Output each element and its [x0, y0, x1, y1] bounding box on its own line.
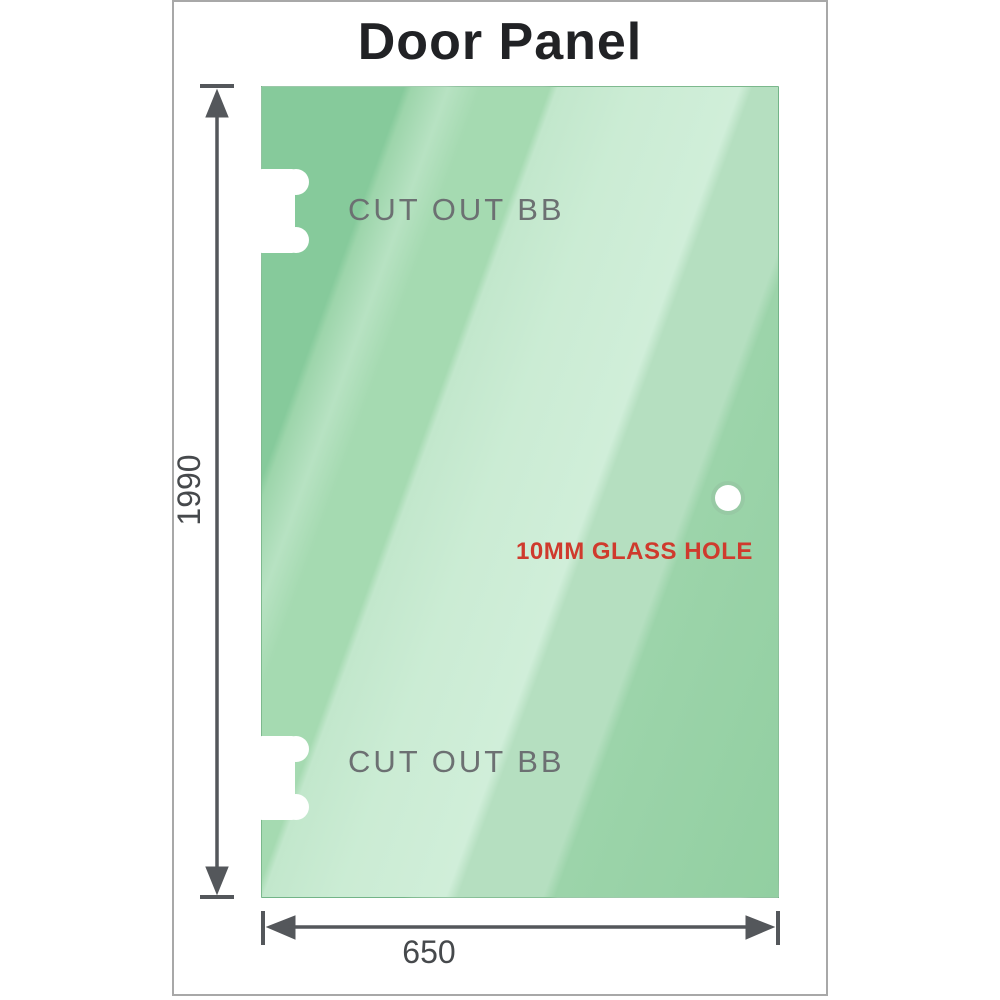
hinge-cutout-top-icon: [259, 168, 311, 255]
height-dimension-value: 1990: [171, 430, 211, 550]
width-dimension-value: 650: [369, 934, 489, 971]
cutout-bottom-label: CUT OUT BB: [348, 744, 565, 780]
door-panel-diagram: Door Panel CUT OUT BB CUT OUT BB 10MM GL…: [0, 0, 1000, 1000]
hinge-cutout-bottom-icon: [259, 735, 311, 822]
glass-hole-label: 10MM GLASS HOLE: [516, 538, 753, 566]
page-title: Door Panel: [172, 12, 828, 72]
glass-hole-icon: [715, 485, 741, 511]
cutout-top-label: CUT OUT BB: [348, 192, 565, 228]
